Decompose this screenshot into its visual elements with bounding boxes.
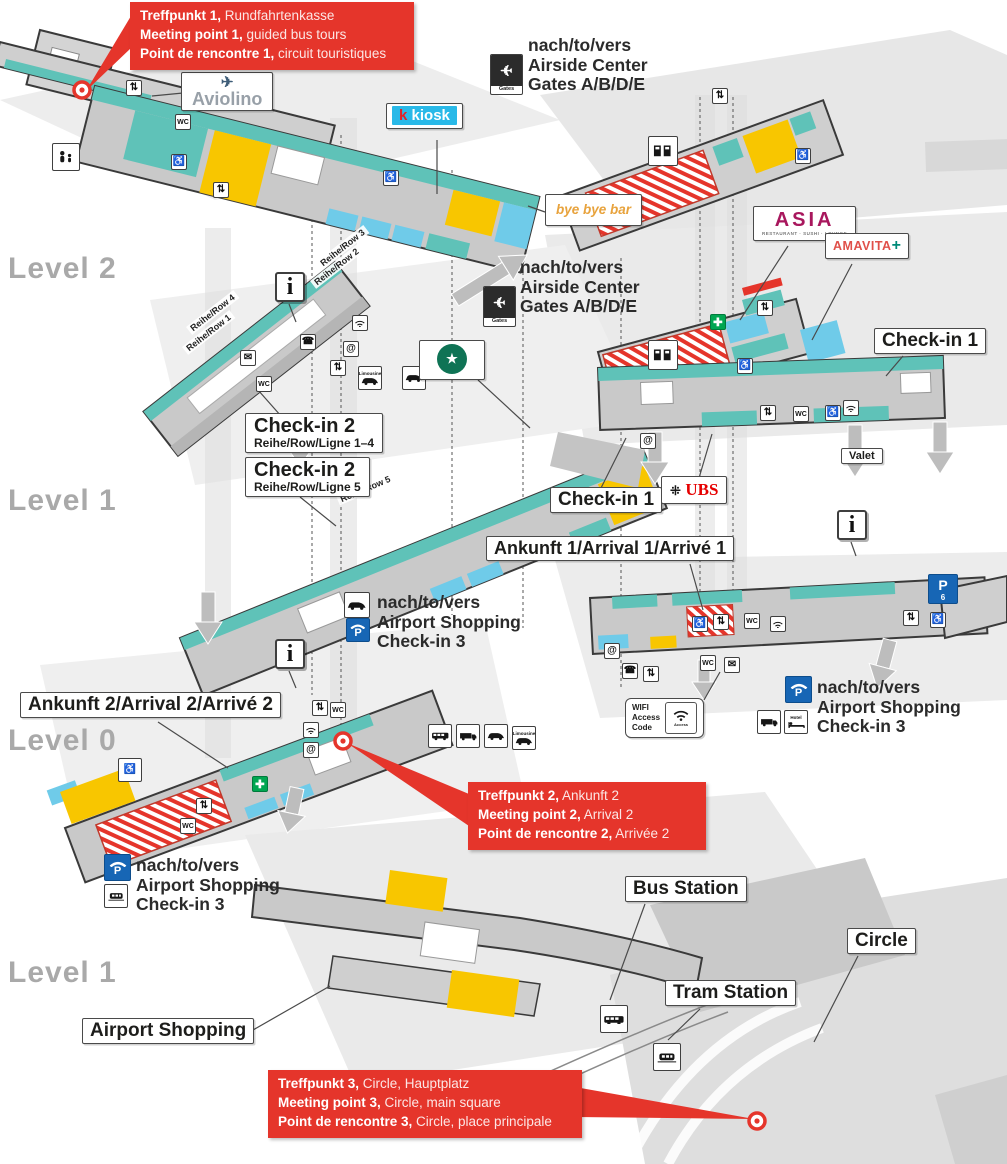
internet-icon: @ [303, 742, 319, 758]
meeting-point-2-marker [335, 733, 351, 749]
direction-airside-top: nach/to/vers Airside Center Gates A/B/D/… [528, 36, 648, 95]
wc-icon: WC [744, 613, 760, 629]
wc-icon: WC [793, 406, 809, 422]
car-icon [344, 592, 370, 618]
wifi-access-code-label: WIFI Access Code Access [625, 698, 704, 738]
mail-icon: ✉ [724, 657, 740, 673]
tram-station-label: Tram Station [665, 980, 796, 1006]
arrival2-label: Ankunft 2/Arrival 2/Arrivé 2 [20, 692, 281, 718]
amavita-label: AMAVITA+ [825, 233, 909, 259]
direction-shopping-right: nach/to/vers Airport Shopping Check-in 3 [817, 678, 961, 737]
parking-garage-icon: P [104, 854, 131, 881]
wc-icon: WC [700, 655, 716, 671]
wc-icon: WC [180, 818, 196, 834]
checkin1-label-mid: Check-in 1 [550, 487, 662, 513]
sos-icon [710, 314, 726, 330]
escalator-icon: ⇅ [903, 610, 919, 626]
meeting-point-3-box: Treffpunkt 3, Circle, Hauptplatz Meeting… [268, 1070, 582, 1138]
escalator-icon: ⇅ [757, 300, 773, 316]
level-2-label: Level 2 [8, 252, 117, 286]
train-icon [104, 884, 128, 908]
accessible-icon: ♿ [930, 612, 946, 628]
hotel-icon: Hotel [784, 710, 808, 734]
gates-plane-icon: ✈Gates [490, 54, 523, 95]
checkin1-label-right: Check-in 1 [874, 328, 986, 354]
direction-shopping-mid: nach/to/vers Airport Shopping Check-in 3 [377, 593, 521, 652]
escalator-icon: ⇅ [330, 360, 346, 376]
wifi-icon [352, 315, 368, 331]
starbucks-label: ★ [419, 340, 485, 380]
information-icon: i [275, 272, 305, 302]
level-1-label: Level 1 [8, 484, 117, 518]
meeting-point-1-box: Treffpunkt 1, Rundfahrtenkasse Meeting p… [130, 2, 414, 70]
valet-label: Valet [841, 448, 883, 464]
internet-icon: @ [343, 341, 359, 357]
escalator-icon: ⇅ [760, 405, 776, 421]
wc-icon: WC [256, 376, 272, 392]
truck-icon [757, 710, 781, 734]
meeting-point-3-marker [749, 1113, 765, 1129]
accessible-icon: ♿ [737, 358, 753, 374]
ticket-machines-icon [648, 340, 678, 370]
limousine-icon: Limousine [512, 726, 536, 750]
phone-icon: ☎ [300, 334, 316, 350]
taxi-icon [484, 724, 508, 748]
accessible-icon: ♿ [171, 154, 187, 170]
airport-map: Level 2 Level 1 Level 0 Level 1 Treffpun… [0, 0, 1007, 1164]
internet-icon: @ [640, 433, 656, 449]
direction-shopping-left: nach/to/vers Airport Shopping Check-in 3 [136, 856, 280, 915]
level-0-label: Level 0 [8, 724, 117, 758]
escalator-icon: ⇅ [712, 88, 728, 104]
meeting-point-1-marker [74, 82, 90, 98]
tram-station-icon [653, 1043, 681, 1071]
limousine-icon: Limousine [358, 366, 382, 390]
pharmacy-cross-icon: + [892, 237, 902, 254]
escalator-icon: ⇅ [213, 182, 229, 198]
wc-icon: WC [175, 114, 191, 130]
accessible-icon: ♿ [383, 170, 399, 186]
gates-plane-icon: ✈Gates [483, 286, 516, 327]
circle-label: Circle [847, 928, 916, 954]
coach-icon [456, 724, 480, 748]
parking-garage-icon: P [346, 618, 370, 642]
ticket-machines-icon [648, 136, 678, 166]
escalator-icon: ⇅ [312, 700, 328, 716]
checkin2-row5-label: Check-in 2 Reihe/Row/Ligne 5 [245, 457, 370, 497]
family-room-icon [52, 143, 80, 171]
escalator-icon: ⇅ [643, 666, 659, 682]
parking-garage-icon: P [785, 676, 812, 703]
accessible-icon: ♿ [795, 148, 811, 164]
information-icon: i [275, 639, 305, 669]
meeting-point-2-box: Treffpunkt 2, Ankunft 2 Meeting point 2,… [468, 782, 706, 850]
starbucks-logo: ★ [437, 344, 467, 374]
wifi-icon: Access [665, 702, 697, 734]
accessible-icon: ♿ [118, 758, 142, 782]
escalator-icon: ⇅ [713, 614, 729, 630]
mail-icon: ✉ [240, 350, 256, 366]
bus-station-label: Bus Station [625, 876, 747, 902]
arrival1-label: Ankunft 1/Arrival 1/Arrivé 1 [486, 536, 734, 561]
wifi-icon [843, 400, 859, 416]
bye-bye-bar-label: bye bye bar [545, 194, 642, 226]
information-icon: i [837, 510, 867, 540]
accessible-icon: ♿ [692, 616, 708, 632]
accessible-icon: ♿ [825, 405, 841, 421]
k-kiosk-label: k kiosk [386, 103, 463, 129]
level-1-bottom-label: Level 1 [8, 956, 117, 990]
map-geometry [0, 0, 1007, 1164]
sos-icon [252, 776, 268, 792]
wifi-icon [770, 616, 786, 632]
aviolino-label: ✈Aviolino [181, 72, 273, 111]
wc-icon: WC [330, 702, 346, 718]
shuttle-bus-icon [428, 724, 452, 748]
escalator-icon: ⇅ [126, 80, 142, 96]
direction-airside-mid: nach/to/vers Airside Center Gates A/B/D/… [520, 258, 640, 317]
airport-shopping-label: Airport Shopping [82, 1018, 254, 1044]
bus-station-icon [600, 1005, 628, 1033]
wifi-icon [303, 722, 319, 738]
parking-p6-icon: P6 [928, 574, 958, 604]
ubs-keys-icon: ⁜ [670, 483, 681, 498]
internet-icon: @ [604, 643, 620, 659]
phone-icon: ☎ [622, 663, 638, 679]
plane-logo-icon: ✈ [192, 75, 262, 90]
ubs-label: ⁜ UBS [661, 476, 727, 504]
escalator-icon: ⇅ [196, 798, 212, 814]
checkin2-rows14-label: Check-in 2 Reihe/Row/Ligne 1–4 [245, 413, 383, 453]
